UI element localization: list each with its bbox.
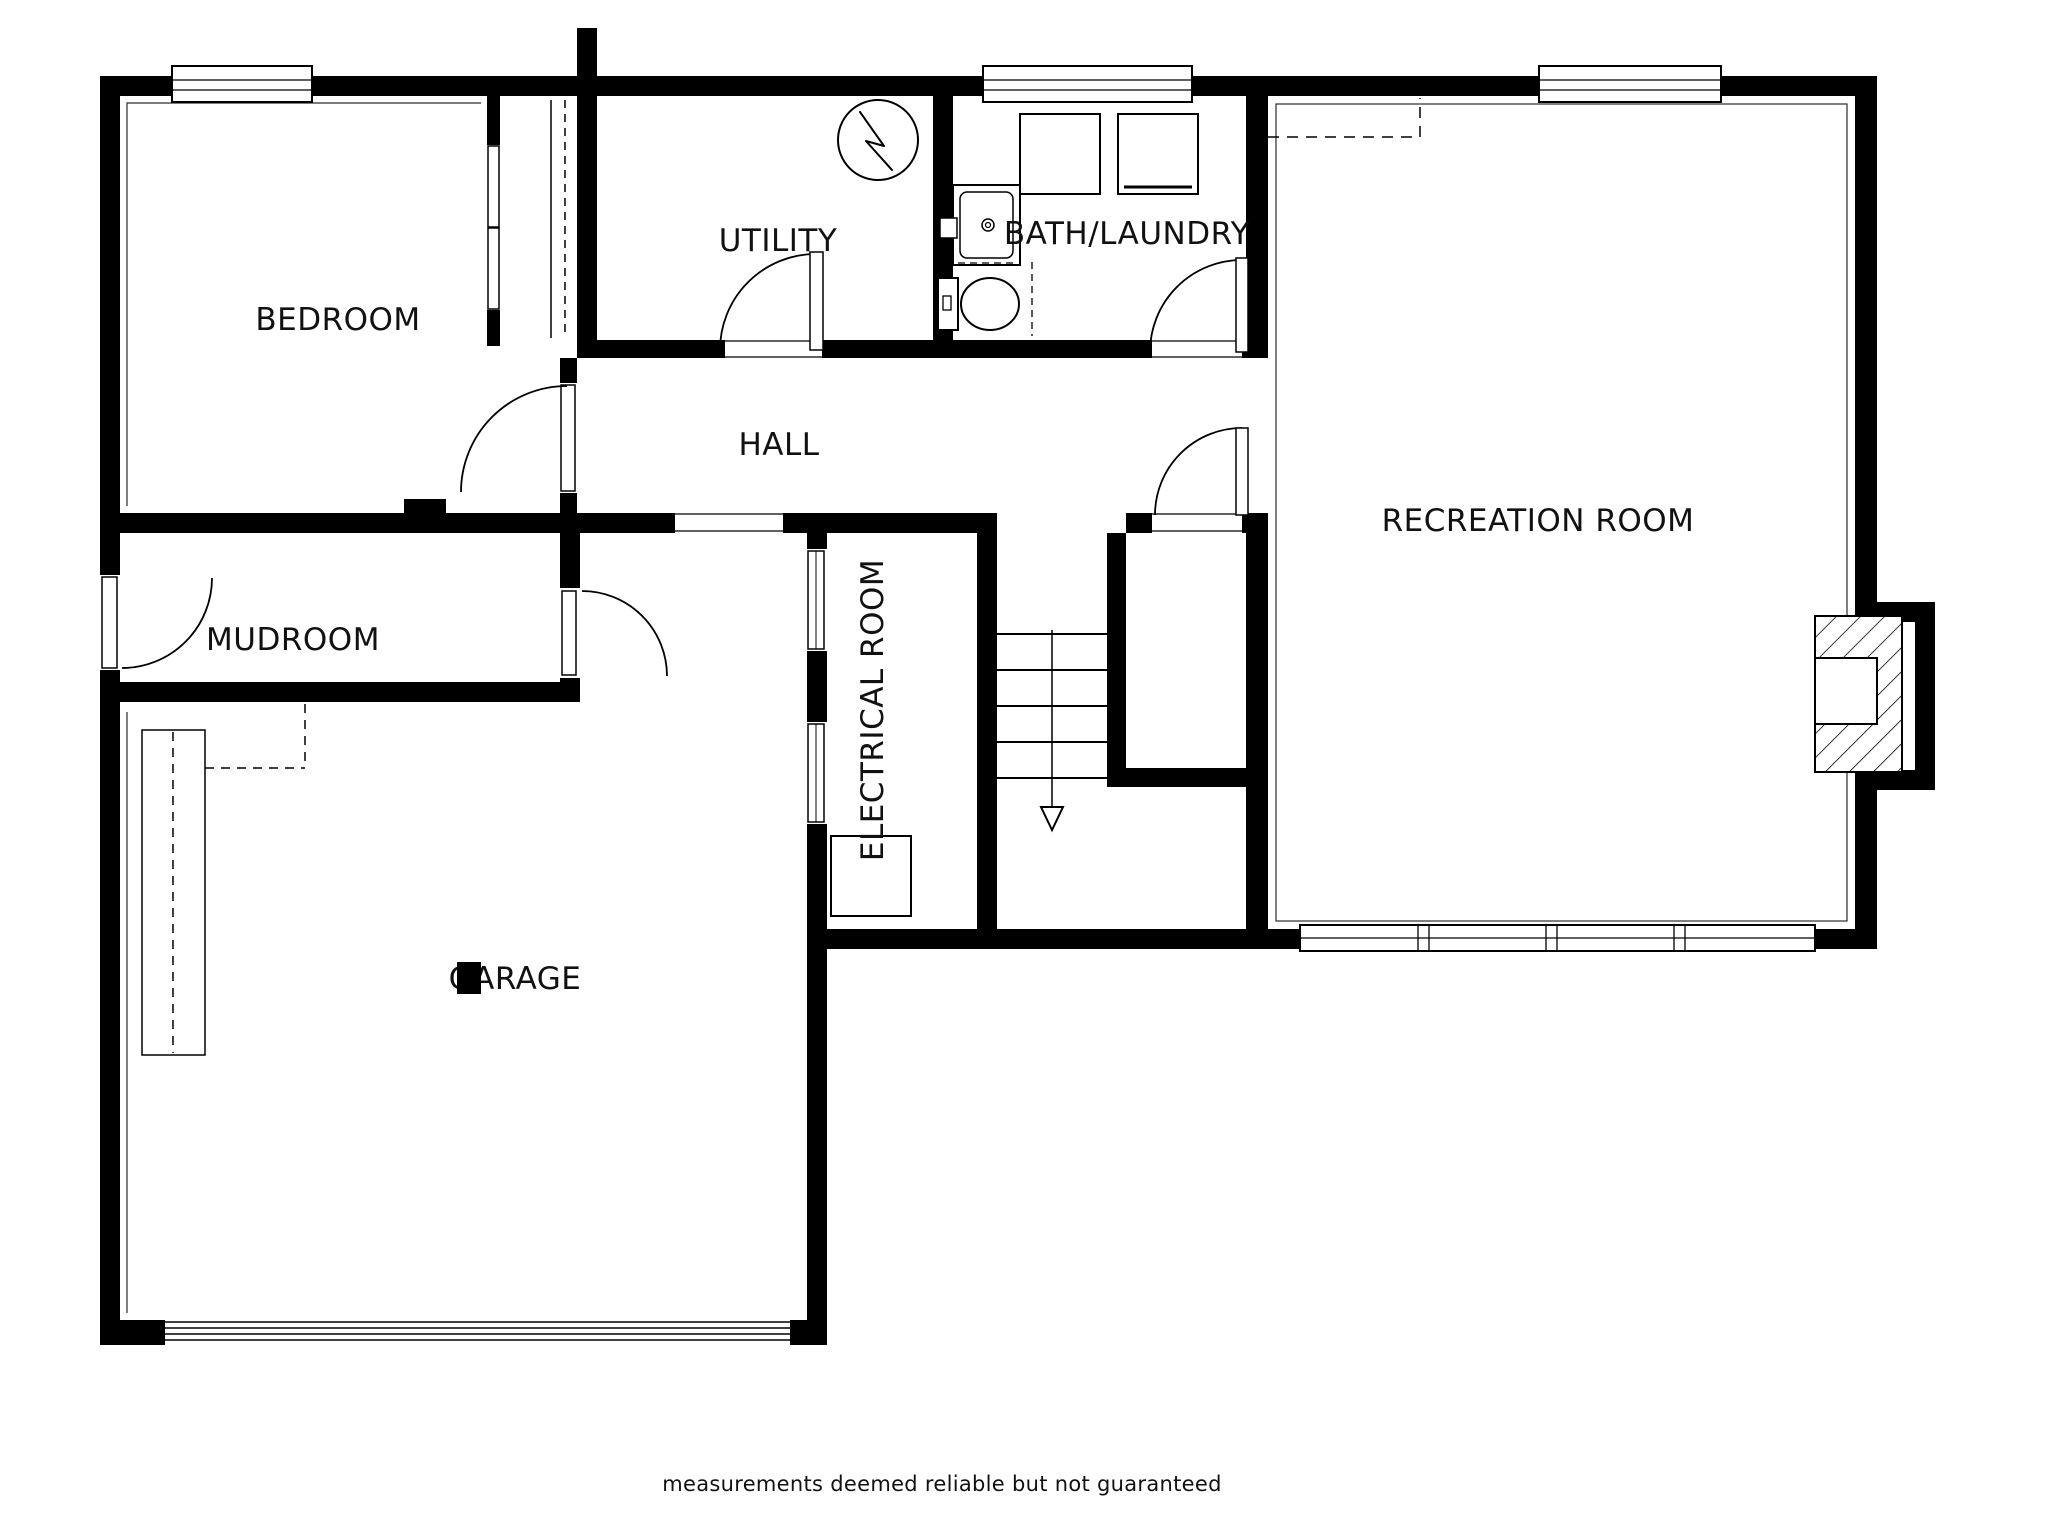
chimney-wall-segment [577, 28, 597, 358]
bath-doorway [1152, 338, 1242, 360]
garage-door [165, 1318, 790, 1347]
door-leaf [810, 252, 823, 350]
wall-segment [100, 682, 580, 702]
wall-segment [977, 533, 997, 929]
door-leaf [1236, 428, 1248, 515]
room-label-bedroom: BEDROOM [255, 302, 420, 338]
wall-segment [560, 358, 577, 385]
wall-segment [1246, 513, 1268, 949]
bath-window [983, 66, 1192, 102]
wall-segment [560, 513, 675, 533]
recreation-top-window [1539, 66, 1721, 102]
electrical-louver-door-upper [805, 549, 829, 651]
wall-segment [487, 96, 500, 145]
toilet-icon [938, 278, 1019, 330]
stair-closet-doorway [1152, 511, 1242, 535]
room-label-utility: UTILITY [719, 223, 838, 259]
hall-garage-opening [675, 511, 783, 535]
disclaimer-text: measurements deemed reliable but not gua… [662, 1472, 1222, 1496]
room-label-mudroom: MUDROOM [206, 622, 380, 658]
wall-segment [560, 676, 580, 702]
wall-segment [100, 76, 120, 1345]
utility-doorway [725, 338, 822, 360]
bedroom-window [172, 66, 312, 102]
bedroom-doorway [558, 383, 579, 493]
electrical-louver-door-lower [805, 722, 829, 824]
mudroom-entry-doorway [97, 575, 123, 670]
wall-segment [1855, 772, 1877, 949]
closet-slider-panel [488, 146, 499, 227]
column-post-icon [457, 962, 481, 994]
closet-slider-panel [488, 228, 499, 309]
wall-segment [783, 513, 997, 533]
door-leaf [1236, 258, 1248, 352]
fireplace-hatch-icon [1815, 616, 1902, 772]
wall-segment [1107, 768, 1268, 787]
wall-segment [1107, 533, 1126, 787]
recreation-bottom-window-band [1300, 925, 1815, 951]
wall-segment [560, 533, 580, 590]
floor-plan-drawing: BEDROOM UTILITY BATH/LAUNDRY HALL RECREA… [0, 0, 2048, 1536]
wall-segment [100, 513, 580, 533]
wall-segment [487, 310, 500, 346]
room-label-hall: HALL [738, 427, 819, 463]
room-label-electrical: ELECTRICAL ROOM [855, 559, 891, 861]
room-label-bath-laundry: BATH/LAUNDRY [1004, 216, 1250, 252]
wall-segment [1915, 602, 1935, 790]
room-label-recreation: RECREATION ROOM [1382, 503, 1695, 539]
wall-segment [1126, 513, 1152, 533]
wall-segment [560, 493, 577, 513]
floor-plan-page: BEDROOM UTILITY BATH/LAUNDRY HALL RECREA… [0, 0, 2048, 1536]
wall-segment [1855, 76, 1877, 618]
wall-segment [807, 533, 827, 1345]
mudroom-garage-doorway [558, 588, 582, 678]
wall-segment [404, 499, 446, 513]
